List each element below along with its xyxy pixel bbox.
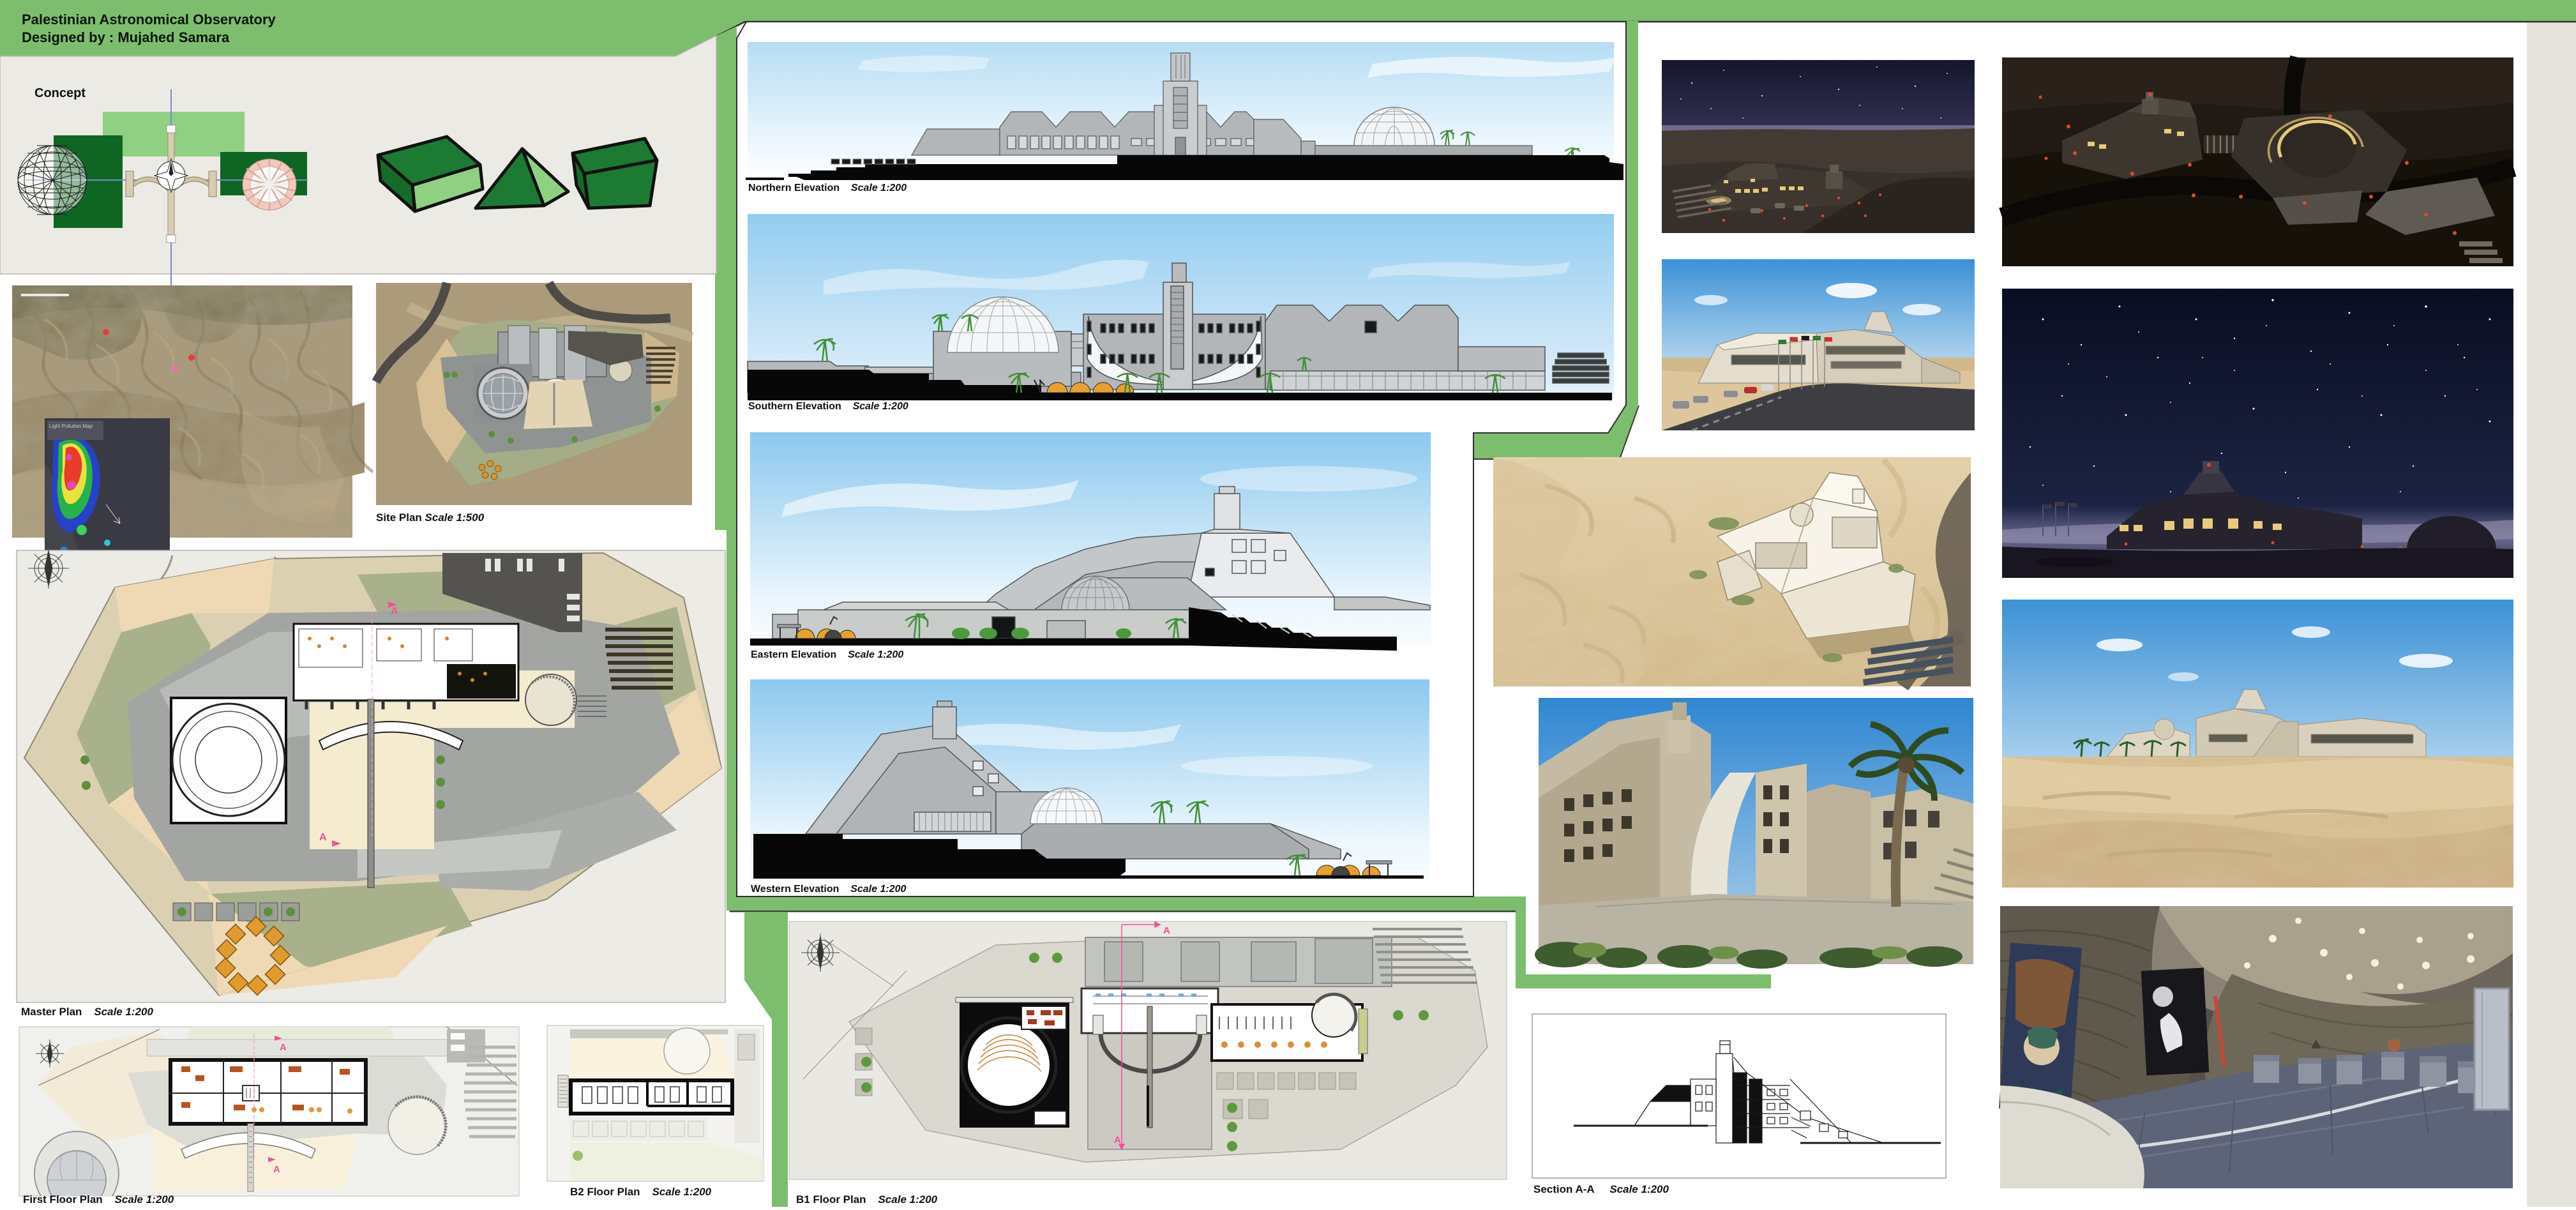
svg-text:A: A	[1114, 1135, 1121, 1146]
svg-text:Section A-A Scale 1:200: Section A-A Scale 1:200	[1533, 1183, 1669, 1195]
svg-text:First Floor Plan Scale 1:20: First Floor Plan Scale 1:200	[23, 1193, 174, 1206]
svg-text:Concept: Concept	[34, 86, 86, 100]
svg-text:A: A	[273, 1164, 280, 1175]
svg-text:A: A	[391, 606, 398, 617]
svg-text:Northern Elevation Scale 1:: Northern Elevation Scale 1:200	[748, 183, 907, 193]
svg-text:Light Pollution Map: Light Pollution Map	[49, 423, 93, 429]
svg-text:A: A	[319, 832, 327, 843]
svg-text:B1 Floor Plan Scale 1:200: B1 Floor Plan Scale 1:200	[796, 1193, 938, 1206]
svg-text:Designed by : Mujahed Samara: Designed by : Mujahed Samara	[22, 29, 230, 45]
svg-text:Palestinian Astronomical Obser: Palestinian Astronomical Observatory	[22, 11, 276, 27]
svg-text:Southern Elevation Scale 1:: Southern Elevation Scale 1:200	[748, 401, 908, 412]
svg-text:B2 Floor Plan Scale 1:200: B2 Floor Plan Scale 1:200	[570, 1186, 712, 1198]
svg-text:A: A	[280, 1042, 287, 1053]
svg-text:Master Plan Scale 1:200: Master Plan Scale 1:200	[21, 1006, 154, 1018]
svg-text:Western Elevation Scale 1:2: Western Elevation Scale 1:200	[751, 884, 906, 895]
svg-text:A: A	[1163, 925, 1170, 936]
svg-text:Eastern Elevation Scale 1:2: Eastern Elevation Scale 1:200	[751, 649, 903, 660]
svg-text:Site Plan Scale 1:500: Site Plan Scale 1:500	[376, 511, 485, 524]
